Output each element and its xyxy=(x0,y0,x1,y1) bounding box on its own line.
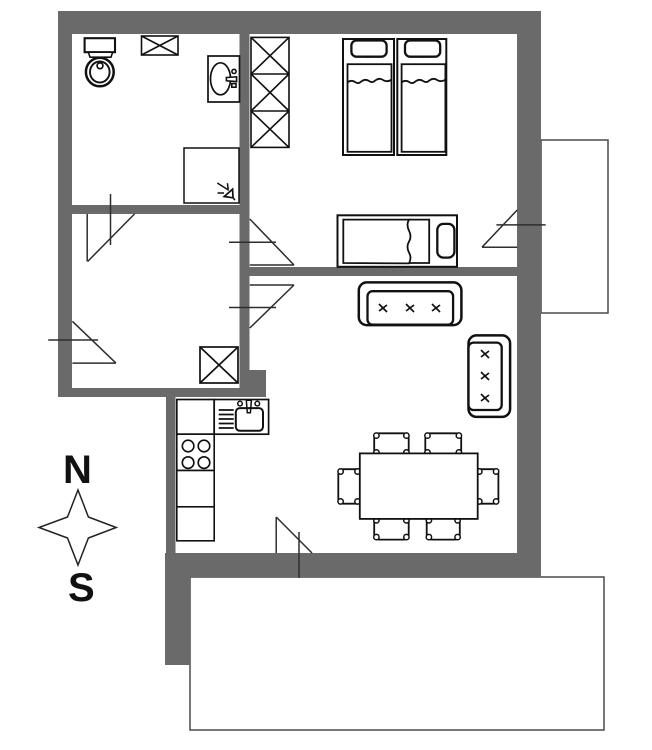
svg-text:N: N xyxy=(63,448,92,492)
svg-text:S: S xyxy=(68,566,95,610)
